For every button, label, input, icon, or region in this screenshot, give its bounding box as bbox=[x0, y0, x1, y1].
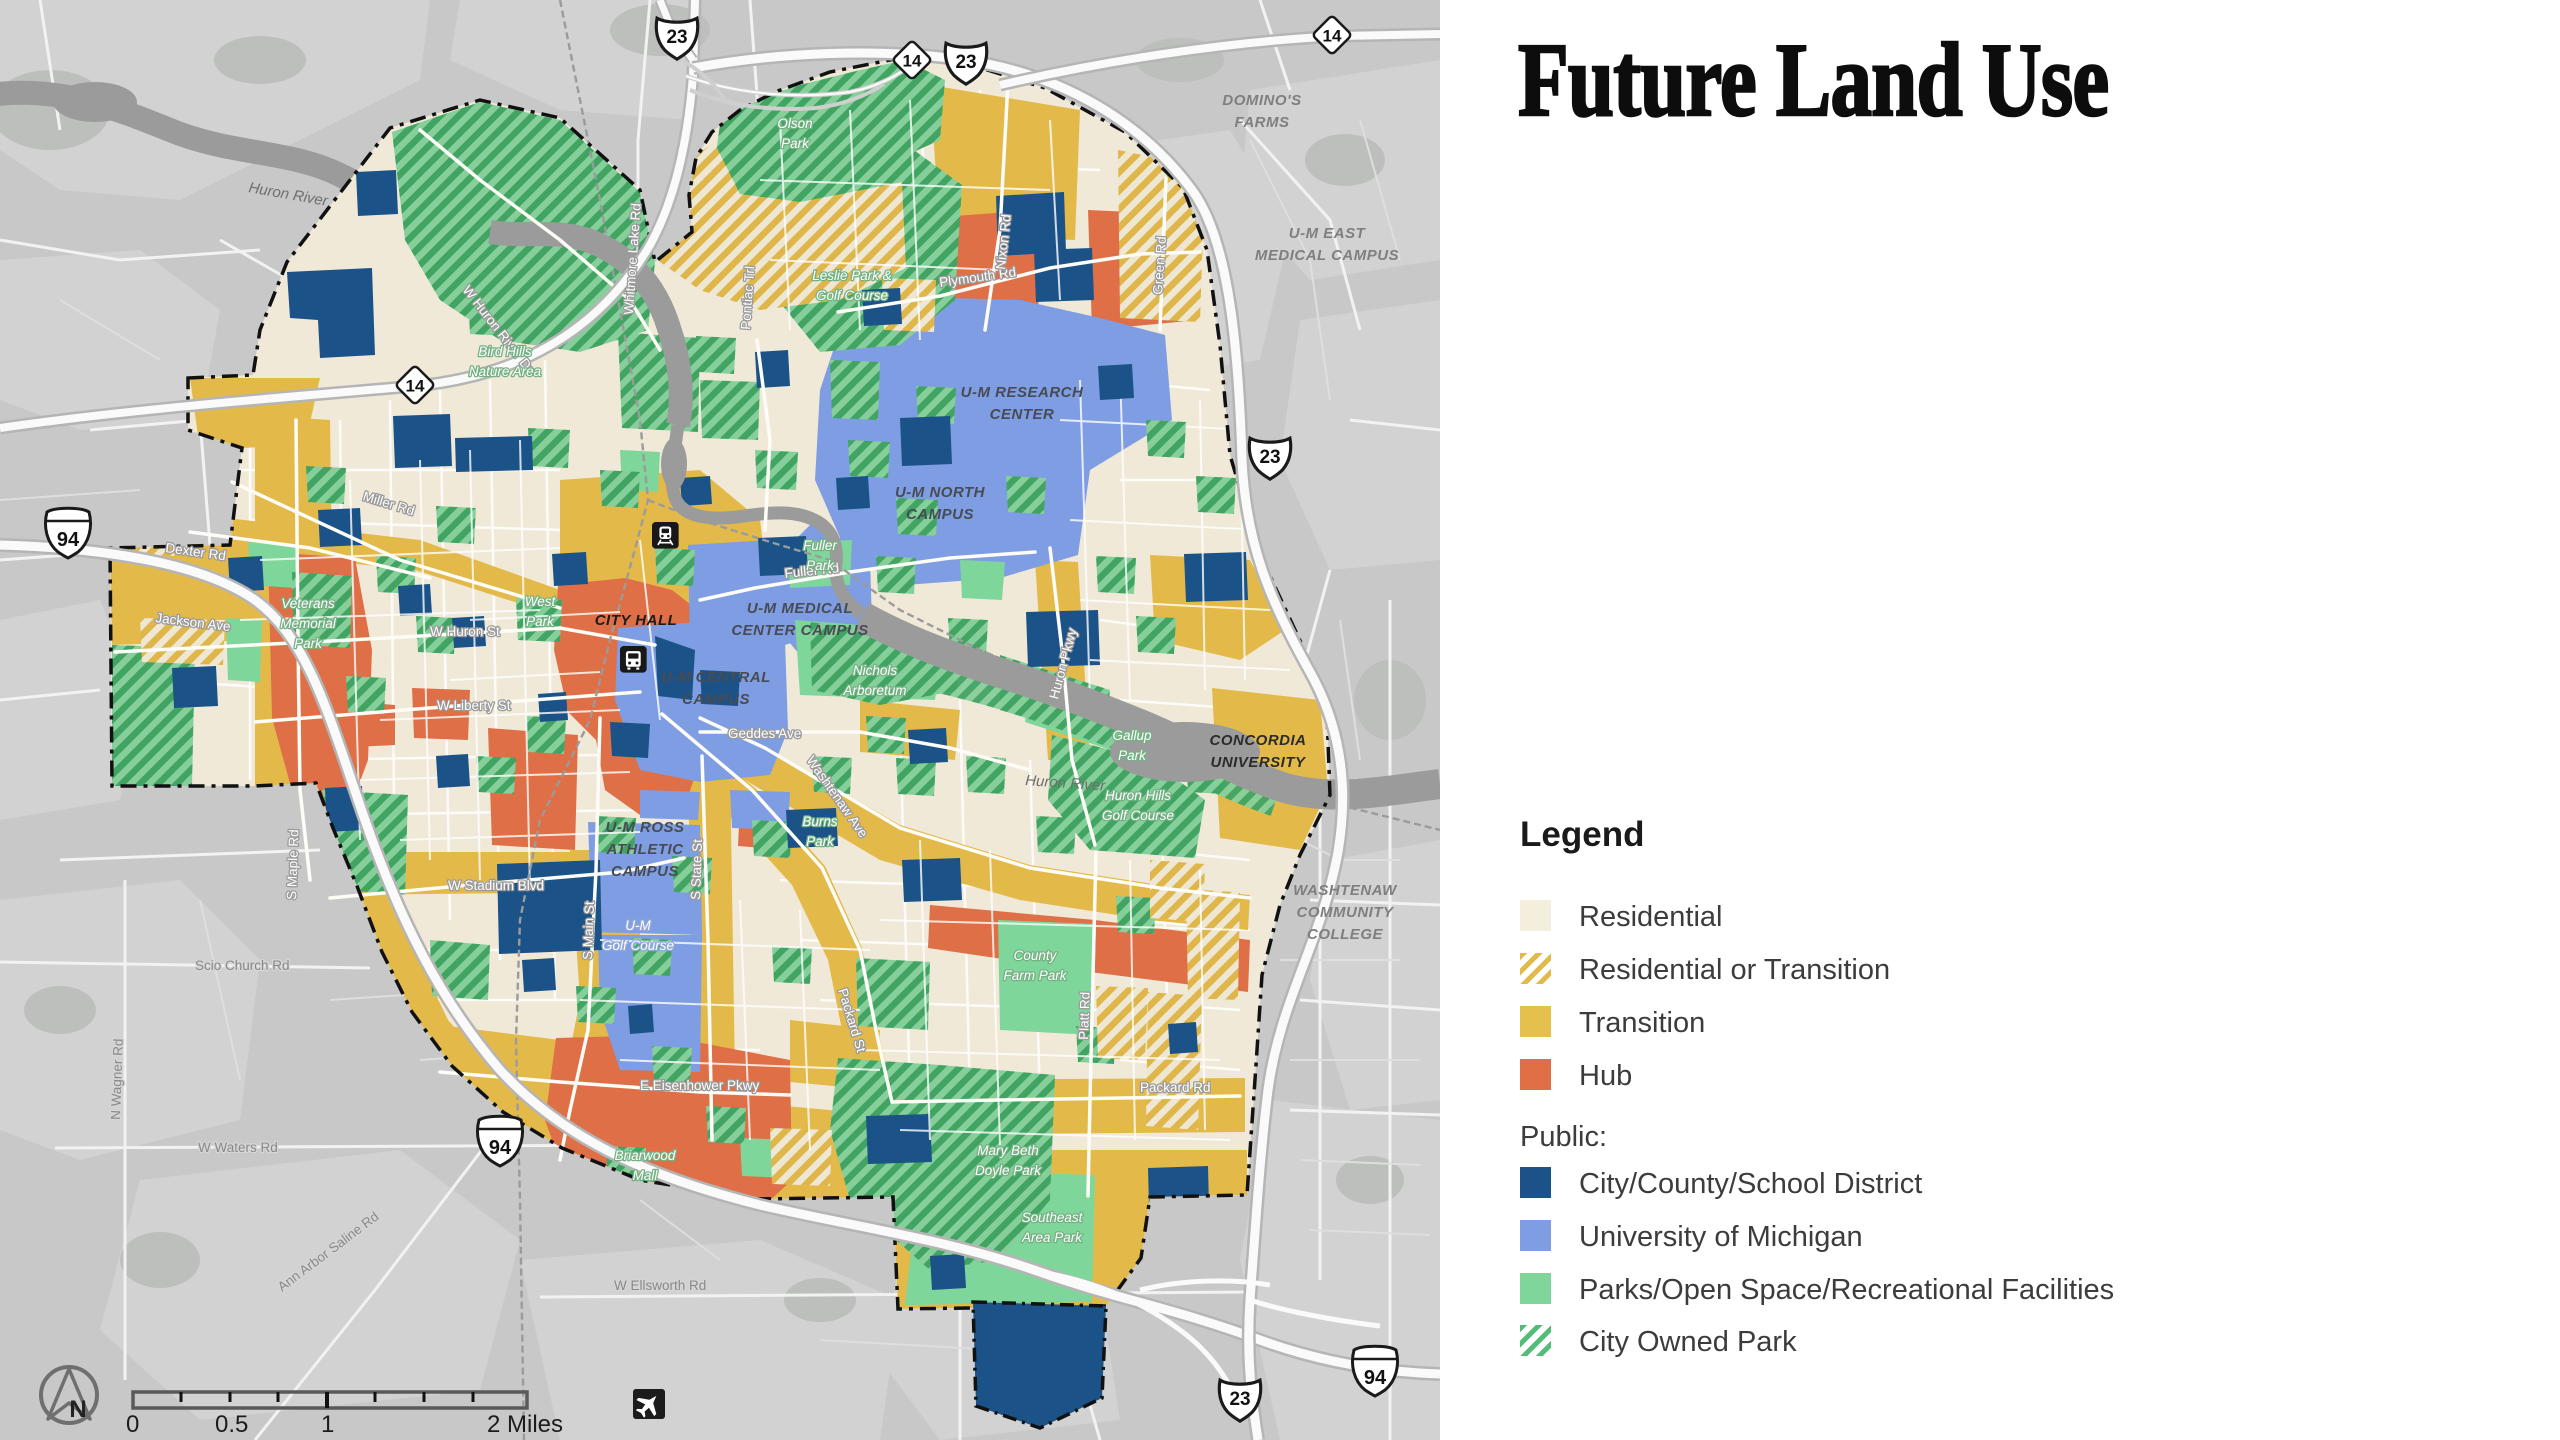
svg-text:COMMUNITY: COMMUNITY bbox=[1297, 904, 1395, 921]
svg-text:94: 94 bbox=[489, 1137, 512, 1159]
svg-text:CAMPUS: CAMPUS bbox=[682, 691, 750, 708]
svg-text:West: West bbox=[525, 594, 557, 609]
svg-text:U-M EAST: U-M EAST bbox=[1289, 225, 1367, 242]
svg-text:N Wagner Rd: N Wagner Rd bbox=[108, 1038, 126, 1120]
svg-text:W Waters Rd: W Waters Rd bbox=[198, 1140, 278, 1155]
svg-text:Nichols: Nichols bbox=[853, 663, 898, 678]
svg-text:0: 0 bbox=[126, 1411, 139, 1438]
svg-text:W Liberty St: W Liberty St bbox=[437, 698, 511, 713]
svg-text:COLLEGE: COLLEGE bbox=[1307, 926, 1383, 943]
svg-text:Fuller: Fuller bbox=[803, 538, 837, 553]
svg-text:U-M CENTRAL: U-M CENTRAL bbox=[661, 669, 771, 686]
svg-text:W Huron St: W Huron St bbox=[430, 624, 500, 639]
svg-text:U-M ROSS: U-M ROSS bbox=[606, 819, 685, 836]
svg-text:U-M RESEARCH: U-M RESEARCH bbox=[961, 384, 1084, 401]
svg-text:1: 1 bbox=[321, 1411, 334, 1438]
svg-text:Scio Church Rd: Scio Church Rd bbox=[195, 958, 290, 973]
svg-text:Olson: Olson bbox=[777, 116, 812, 131]
svg-text:Farm Park: Farm Park bbox=[1003, 968, 1067, 983]
svg-text:Park: Park bbox=[806, 558, 835, 573]
svg-text:CONCORDIA: CONCORDIA bbox=[1210, 732, 1307, 749]
svg-text:Doyle Park: Doyle Park bbox=[975, 1163, 1042, 1178]
svg-text:94: 94 bbox=[1364, 1367, 1387, 1389]
svg-text:14: 14 bbox=[1323, 27, 1342, 46]
svg-text:94: 94 bbox=[57, 529, 80, 551]
svg-text:County: County bbox=[1014, 948, 1058, 963]
svg-text:U-M NORTH: U-M NORTH bbox=[895, 484, 986, 501]
svg-text:Bird Hills: Bird Hills bbox=[478, 344, 532, 359]
svg-text:Park: Park bbox=[806, 834, 835, 849]
svg-text:Mary Beth: Mary Beth bbox=[977, 1143, 1039, 1158]
svg-text:23: 23 bbox=[955, 52, 976, 73]
svg-text:Golf Course: Golf Course bbox=[1102, 808, 1174, 823]
svg-text:2 Miles: 2 Miles bbox=[487, 1411, 563, 1438]
svg-text:Veterans: Veterans bbox=[281, 596, 335, 611]
svg-text:Park: Park bbox=[294, 636, 323, 651]
svg-text:23: 23 bbox=[1229, 1389, 1250, 1410]
svg-text:E Eisenhower Pkwy: E Eisenhower Pkwy bbox=[640, 1078, 760, 1093]
svg-text:N: N bbox=[69, 1396, 86, 1423]
svg-text:Memorial: Memorial bbox=[280, 616, 337, 631]
svg-text:Southeast: Southeast bbox=[1022, 1210, 1084, 1225]
svg-text:23: 23 bbox=[1259, 447, 1280, 468]
svg-text:UNIVERSITY: UNIVERSITY bbox=[1210, 754, 1307, 771]
svg-text:Golf Course: Golf Course bbox=[602, 938, 674, 953]
svg-text:Burns: Burns bbox=[802, 814, 838, 829]
svg-text:14: 14 bbox=[406, 377, 425, 396]
svg-text:S State St: S State St bbox=[688, 839, 705, 901]
svg-text:CAMPUS: CAMPUS bbox=[611, 863, 679, 880]
svg-text:FARMS: FARMS bbox=[1235, 114, 1290, 131]
svg-text:Arboretum: Arboretum bbox=[842, 683, 906, 698]
svg-text:Park: Park bbox=[1118, 748, 1147, 763]
svg-text:Park: Park bbox=[781, 136, 810, 151]
svg-text:Platt Rd: Platt Rd bbox=[1076, 992, 1093, 1041]
svg-text:Nature Area: Nature Area bbox=[469, 364, 542, 379]
svg-text:Golf Course: Golf Course bbox=[816, 288, 888, 303]
svg-text:CENTER CAMPUS: CENTER CAMPUS bbox=[731, 622, 868, 639]
svg-text:Mall: Mall bbox=[633, 1168, 659, 1183]
svg-text:ATHLETIC: ATHLETIC bbox=[605, 841, 684, 858]
svg-text:Geddes Ave: Geddes Ave bbox=[728, 726, 801, 741]
svg-text:W Ellsworth Rd: W Ellsworth Rd bbox=[614, 1278, 706, 1293]
svg-text:Huron Hills: Huron Hills bbox=[1105, 788, 1171, 803]
svg-text:MEDICAL CAMPUS: MEDICAL CAMPUS bbox=[1255, 247, 1399, 264]
svg-text:0.5: 0.5 bbox=[215, 1411, 248, 1438]
svg-text:CAMPUS: CAMPUS bbox=[906, 506, 974, 523]
svg-text:W Stadium Blvd: W Stadium Blvd bbox=[448, 878, 544, 893]
svg-text:CITY HALL: CITY HALL bbox=[595, 612, 678, 629]
svg-text:U-M MEDICAL: U-M MEDICAL bbox=[747, 600, 853, 617]
svg-text:WASHTENAW: WASHTENAW bbox=[1293, 882, 1398, 899]
svg-text:Packard Rd: Packard Rd bbox=[1140, 1080, 1211, 1095]
svg-text:Gallup: Gallup bbox=[1112, 728, 1152, 743]
svg-text:Briarwood: Briarwood bbox=[615, 1148, 676, 1163]
svg-text:Leslie Park &: Leslie Park & bbox=[812, 268, 892, 283]
svg-text:Park: Park bbox=[526, 614, 555, 629]
svg-text:S Maple Rd: S Maple Rd bbox=[284, 829, 301, 900]
svg-text:DOMINO'S: DOMINO'S bbox=[1222, 92, 1301, 109]
svg-text:S Main St: S Main St bbox=[580, 901, 597, 960]
svg-text:14: 14 bbox=[903, 52, 922, 71]
svg-text:23: 23 bbox=[666, 27, 687, 48]
svg-text:U-M: U-M bbox=[625, 918, 651, 933]
svg-text:Area Park: Area Park bbox=[1021, 1230, 1083, 1245]
svg-text:CENTER: CENTER bbox=[990, 406, 1055, 423]
